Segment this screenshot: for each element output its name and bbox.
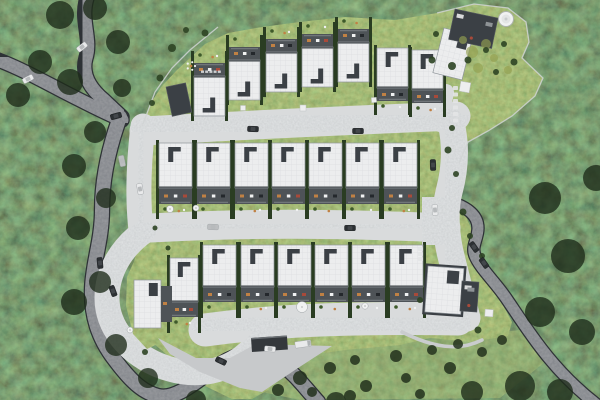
- terrace-furniture: [352, 34, 356, 37]
- lawn-tree: [453, 339, 463, 349]
- roof-eave: [235, 186, 268, 188]
- terrace-furniture: [218, 293, 222, 296]
- terrace-furniture: [296, 195, 300, 198]
- roof-eave: [266, 52, 297, 54]
- roof-courtyard-notch: [447, 270, 460, 284]
- terrace-furniture: [382, 93, 386, 96]
- terrace-railing: [340, 30, 367, 31]
- site-plan-aerial-view: [0, 0, 600, 400]
- terrace-furniture: [250, 195, 254, 198]
- lawn-tree: [444, 362, 456, 374]
- car-windshield: [348, 226, 353, 230]
- terrace-furniture: [280, 44, 284, 47]
- garden-furniture: [408, 209, 410, 211]
- terrace-railing: [280, 300, 309, 301]
- garden-furniture: [283, 32, 286, 35]
- garden-bush: [157, 75, 164, 82]
- tree-canopy: [96, 188, 116, 208]
- stepping-stone: [201, 71, 204, 73]
- car-windshield: [251, 127, 256, 131]
- roof-eave: [159, 186, 192, 188]
- terrace-furniture: [288, 44, 292, 47]
- terrace-furniture: [395, 293, 399, 296]
- terrace-furniture: [351, 195, 355, 198]
- terrace-furniture: [174, 195, 178, 198]
- lawn-tree: [293, 371, 307, 385]
- garden-bush: [183, 27, 189, 33]
- garden-bush: [501, 41, 507, 47]
- roof-eave: [170, 300, 198, 302]
- stepping-stone: [218, 71, 221, 73]
- lawn-tree: [307, 387, 317, 397]
- garden-shrub: [306, 24, 310, 28]
- terrace-pad: [485, 309, 493, 317]
- terrace-furniture: [283, 293, 287, 296]
- lawn-tree: [477, 347, 487, 357]
- roof-eave: [197, 186, 230, 188]
- hedge: [387, 242, 390, 318]
- garden-furniture: [434, 108, 436, 110]
- garden-shrub: [276, 207, 280, 211]
- garden-shrub: [233, 37, 237, 41]
- terrace-furniture: [302, 293, 306, 296]
- car: [345, 225, 356, 231]
- roof-eave: [352, 285, 385, 287]
- garden-bush: [483, 47, 489, 53]
- terrace-furniture: [234, 52, 238, 55]
- stepping-stone: [453, 119, 458, 123]
- car-windshield: [433, 207, 437, 212]
- hedge: [312, 242, 315, 318]
- seating-dot: [191, 61, 193, 63]
- garden-furniture: [189, 322, 191, 324]
- garden-furniture: [211, 56, 214, 59]
- garden-shrub: [356, 305, 360, 309]
- terrace-railing: [205, 300, 234, 301]
- garden-furniture: [376, 307, 378, 309]
- hedge: [299, 22, 302, 92]
- terrace-furniture: [307, 39, 311, 42]
- garden-furniture: [334, 308, 337, 311]
- hedge: [409, 47, 412, 117]
- parasol-center: [301, 306, 303, 308]
- garden-bush: [449, 125, 455, 131]
- garden-furniture: [259, 209, 261, 211]
- garden-bush: [202, 30, 209, 37]
- gazebo-center: [505, 18, 508, 21]
- tree-canopy: [84, 121, 106, 143]
- garden-bush: [448, 62, 456, 70]
- car: [247, 126, 258, 132]
- tree-canopy: [505, 371, 535, 400]
- tree-canopy: [525, 297, 555, 327]
- clubhouse-annex: [460, 281, 479, 312]
- roof-eave: [315, 285, 348, 287]
- terrace-furniture: [256, 293, 260, 296]
- garden-furniture: [260, 308, 263, 311]
- hedge: [374, 45, 377, 115]
- garden-shrub: [313, 207, 317, 211]
- hedge: [269, 140, 272, 219]
- roof-eave: [241, 285, 274, 287]
- car-windshield: [98, 260, 102, 265]
- car-windshield: [356, 129, 361, 133]
- hedge: [343, 140, 346, 219]
- garden-furniture: [265, 307, 267, 309]
- stepping-stone: [453, 86, 458, 90]
- parasol-center: [129, 329, 131, 331]
- tree-canopy: [62, 154, 86, 178]
- tree-canopy: [6, 83, 30, 107]
- pad-surface: [485, 309, 493, 317]
- middle-lane: [150, 224, 446, 228]
- roof-eave: [309, 186, 342, 188]
- terrace-furniture: [208, 293, 212, 296]
- garden-shrub: [207, 305, 211, 309]
- car-windshield: [431, 163, 435, 168]
- picnic-table: [190, 65, 193, 68]
- tree-canopy: [28, 50, 52, 74]
- roof-eave: [278, 285, 311, 287]
- terrace-furniture: [391, 93, 395, 96]
- garden-shrub: [342, 19, 346, 23]
- terrace-furniture: [293, 293, 297, 296]
- terrace-furniture: [320, 293, 324, 296]
- garden-furniture: [183, 209, 185, 211]
- terrace-furniture: [243, 52, 247, 55]
- tree-canopy: [61, 289, 87, 315]
- garden-furniture: [216, 55, 218, 57]
- terrace-furniture: [259, 195, 263, 198]
- parasol-center: [169, 208, 171, 210]
- garden-bush: [453, 171, 459, 177]
- terrace-furniture: [277, 195, 281, 198]
- hedge: [381, 140, 384, 219]
- terrace-furniture: [426, 95, 430, 98]
- garden-bush: [511, 59, 518, 66]
- garden-shrub: [282, 305, 286, 309]
- hedge: [417, 140, 420, 219]
- upper-lane: [144, 116, 456, 131]
- garden-furniture: [186, 323, 189, 326]
- roof-eave: [194, 76, 225, 78]
- garden-shrub: [350, 207, 354, 211]
- terrace-furniture: [361, 195, 365, 198]
- terrace-furniture: [389, 195, 393, 198]
- terrace-furniture: [360, 34, 364, 37]
- loop-corner-house: [134, 280, 172, 328]
- terrace-furniture: [399, 195, 403, 198]
- stepping-stone: [209, 71, 212, 73]
- garden-furniture: [355, 22, 358, 25]
- terrace-furniture: [408, 195, 412, 198]
- stepping-stone: [418, 252, 423, 256]
- terrace-railing: [199, 202, 228, 203]
- garden-furniture: [288, 31, 290, 33]
- garden-shrub: [416, 106, 420, 110]
- garden-furniture: [328, 210, 331, 213]
- lawn-tree: [415, 389, 425, 399]
- terrace-furniture: [316, 39, 320, 42]
- stepping-stone: [418, 257, 423, 261]
- garden-shrub: [239, 207, 243, 211]
- garden-furniture: [178, 210, 181, 213]
- terrace-railing: [268, 40, 295, 41]
- seating-dot: [187, 63, 189, 65]
- terrace-furniture: [175, 308, 179, 311]
- terrace-furniture: [324, 39, 328, 42]
- terrace-railing: [348, 202, 377, 203]
- roof-eave: [272, 186, 305, 188]
- garden-bush: [433, 31, 439, 37]
- roof-eave: [229, 60, 260, 62]
- terrace-pad: [241, 106, 246, 111]
- garden-furniture: [399, 106, 401, 108]
- garden-furniture: [409, 308, 412, 311]
- garden-bush: [445, 147, 452, 154]
- lower-lane: [205, 318, 458, 330]
- lawn-tree: [272, 384, 284, 396]
- stepping-stone: [418, 247, 423, 251]
- terrace-pad: [371, 97, 376, 102]
- tree-canopy: [551, 239, 585, 273]
- terrace-railing: [243, 300, 272, 301]
- tree-canopy: [89, 271, 111, 293]
- meadow-patch: [504, 66, 512, 74]
- garden-shrub: [174, 320, 178, 324]
- garden-bush: [475, 327, 482, 334]
- stepping-stone: [453, 93, 458, 97]
- garden-furniture: [403, 210, 406, 213]
- terrace-railing: [311, 202, 340, 203]
- terrace-railing: [414, 101, 441, 102]
- terrace-railing: [386, 202, 415, 203]
- meadow-patch: [473, 63, 483, 73]
- tree-canopy: [569, 319, 595, 345]
- terrace-railing: [172, 315, 196, 316]
- roof-eave: [384, 186, 417, 188]
- stepping-stone: [453, 106, 458, 110]
- car: [430, 159, 436, 170]
- parking-bay: [422, 197, 448, 245]
- roof-courtyard-notch: [149, 283, 158, 296]
- terrace-pad: [300, 105, 306, 111]
- car: [264, 346, 275, 352]
- tree-canopy: [66, 216, 90, 240]
- roof-eave: [412, 88, 443, 90]
- hedge: [349, 242, 352, 318]
- roof-eave: [338, 42, 369, 44]
- lawn-tree: [360, 380, 372, 392]
- garden-shrub: [201, 207, 205, 211]
- hedge: [232, 140, 235, 219]
- roof-eave: [390, 285, 423, 287]
- garden-bush: [467, 233, 473, 239]
- roof-eave: [377, 86, 408, 88]
- garden-furniture: [324, 26, 326, 28]
- lawn-tree: [401, 373, 411, 383]
- terrace-furniture: [417, 95, 421, 98]
- lawn-tree: [350, 355, 360, 365]
- terrace-furniture: [367, 293, 371, 296]
- terrace-furniture: [189, 308, 193, 311]
- terrace-railing: [274, 202, 303, 203]
- terrace-furniture: [183, 195, 187, 198]
- terrace-railing: [231, 48, 258, 49]
- tree-canopy: [138, 368, 158, 388]
- terrace-furniture: [221, 195, 225, 198]
- hedge: [369, 17, 372, 87]
- terrace-furniture: [405, 293, 409, 296]
- tree-canopy: [46, 1, 74, 29]
- garden-bush: [493, 69, 499, 75]
- garden-furniture: [414, 307, 416, 309]
- garden-furniture: [429, 109, 432, 112]
- tree-canopy: [113, 79, 131, 97]
- terrace-furniture: [343, 34, 347, 37]
- garden-bush: [417, 297, 423, 303]
- terrace-furniture: [330, 293, 334, 296]
- garden-bush: [153, 226, 158, 231]
- car: [353, 128, 364, 134]
- hedge: [156, 140, 159, 219]
- site-plan-rendering: [0, 0, 600, 400]
- hedge: [275, 242, 278, 318]
- terrace-furniture: [314, 195, 318, 198]
- terrace-furniture: [370, 195, 374, 198]
- garden-bush: [429, 57, 436, 64]
- terrace-railing: [196, 64, 223, 65]
- garden-shrub: [394, 305, 398, 309]
- car: [97, 257, 103, 268]
- garden-shrub: [245, 305, 249, 309]
- terrace-furniture: [164, 195, 168, 198]
- pad-surface: [459, 81, 471, 93]
- car-windshield: [211, 225, 216, 229]
- terrace-railing: [317, 300, 346, 301]
- terrace-furniture: [287, 195, 291, 198]
- lawn-tree: [324, 362, 336, 374]
- terrace-furniture: [251, 52, 255, 55]
- hedge: [263, 27, 266, 97]
- seating-dot: [194, 65, 196, 67]
- pad-surface: [300, 105, 306, 111]
- pad-surface: [241, 106, 246, 111]
- garden-shrub: [388, 207, 392, 211]
- terrace-furniture: [339, 293, 343, 296]
- roof-eave: [346, 186, 379, 188]
- terrace-furniture: [183, 308, 187, 311]
- tree-canopy: [529, 182, 561, 214]
- meadow-patch: [466, 46, 478, 58]
- car-windshield: [267, 347, 272, 351]
- hedge: [335, 17, 338, 87]
- terrace-pad: [459, 81, 471, 93]
- terrace-furniture: [202, 195, 206, 198]
- garden-shrub: [319, 305, 323, 309]
- car: [207, 224, 218, 230]
- seating-dot: [191, 69, 193, 71]
- stepping-stone: [453, 99, 458, 103]
- terrace-furniture: [227, 293, 231, 296]
- lawn-tree: [497, 335, 507, 345]
- rooftop-equipment: [467, 287, 474, 291]
- terrace-railing: [237, 202, 266, 203]
- garden-bush: [460, 209, 467, 216]
- parasol-center: [195, 207, 197, 209]
- tree-canopy: [106, 30, 130, 54]
- west-connector-lane: [139, 126, 143, 230]
- stepping-stone: [214, 71, 217, 73]
- terrace-furniture: [212, 195, 216, 198]
- tree-canopy: [57, 69, 83, 95]
- terrace-railing: [354, 300, 383, 301]
- terrace-furniture: [357, 293, 361, 296]
- stepping-stone: [205, 71, 208, 73]
- garden-furniture: [370, 209, 372, 211]
- terrace-furniture: [163, 302, 167, 305]
- stepping-stone: [453, 112, 458, 116]
- garden-shrub: [198, 53, 202, 57]
- garden-furniture: [296, 209, 298, 211]
- terrace-furniture: [265, 293, 269, 296]
- lawn-tree: [427, 345, 437, 355]
- terrace-furniture: [333, 195, 337, 198]
- terrace-railing: [304, 35, 331, 36]
- roof-eave: [203, 285, 236, 287]
- garden-shrub: [270, 29, 274, 33]
- garden-bush: [142, 349, 148, 355]
- terrace-furniture: [414, 293, 418, 296]
- roof-eave: [302, 47, 333, 49]
- car: [432, 204, 438, 215]
- garden-furniture: [254, 210, 257, 213]
- terrace-furniture: [434, 95, 438, 98]
- terrace-railing: [392, 300, 421, 301]
- terrace-furniture: [399, 93, 403, 96]
- terrace-railing: [379, 99, 406, 100]
- terrace-railing: [161, 202, 190, 203]
- terrace-furniture: [376, 293, 380, 296]
- garden-bush: [168, 44, 176, 52]
- tree-canopy: [105, 334, 127, 356]
- garden-bush: [465, 57, 472, 64]
- garden-shrub: [381, 104, 385, 108]
- lawn-tree: [390, 350, 402, 362]
- terrace-furniture: [271, 44, 275, 47]
- pad-surface: [371, 97, 376, 102]
- hedge: [200, 242, 203, 318]
- terrace-furniture: [324, 195, 328, 198]
- hedge: [306, 140, 309, 219]
- meadow-patch: [490, 54, 498, 62]
- parasol-center: [364, 305, 366, 307]
- garden-bush: [166, 246, 171, 251]
- meadow-patch: [459, 36, 467, 44]
- terrace-furniture: [246, 293, 250, 296]
- terrace-furniture: [240, 195, 244, 198]
- hedge: [226, 35, 229, 105]
- garden-bush: [149, 100, 155, 106]
- seating-dot: [187, 67, 189, 69]
- hedge: [238, 242, 241, 318]
- hedge: [260, 35, 263, 105]
